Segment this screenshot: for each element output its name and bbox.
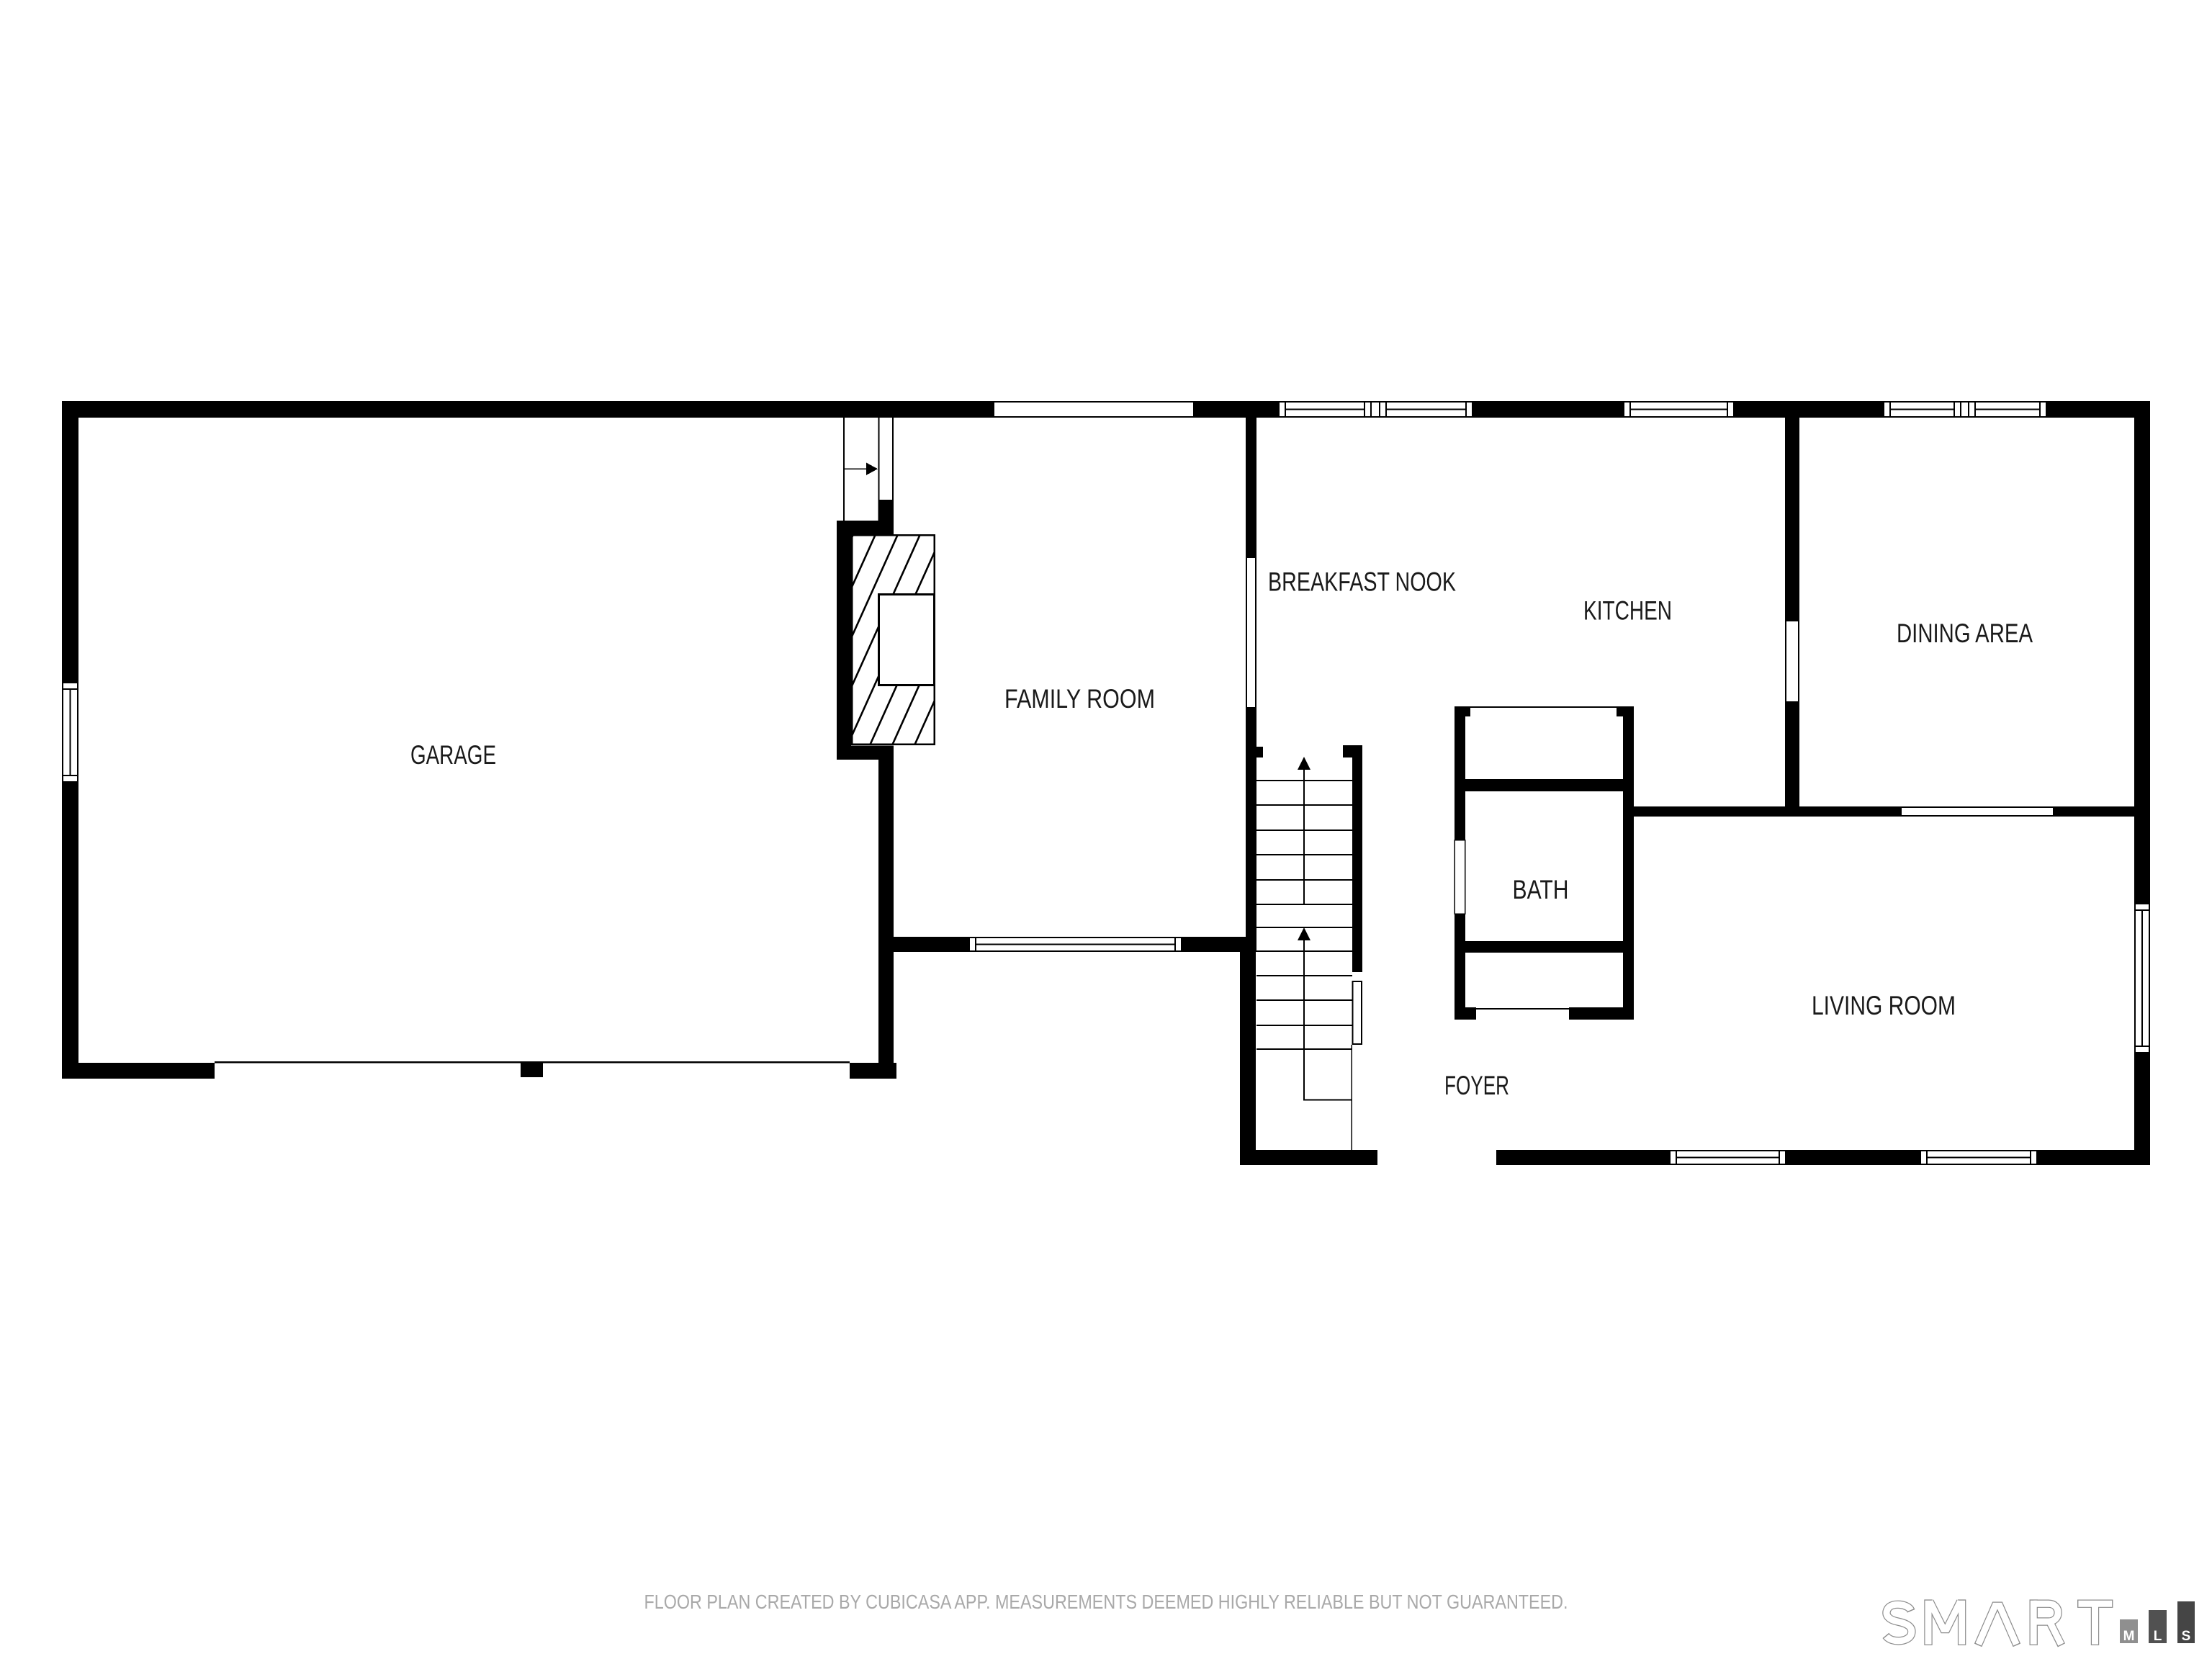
svg-text:BREAKFAST NOOK: BREAKFAST NOOK bbox=[1268, 567, 1456, 597]
svg-text:FOYER: FOYER bbox=[1444, 1071, 1509, 1100]
svg-text:BATH: BATH bbox=[1513, 875, 1569, 904]
svg-text:GARAGE: GARAGE bbox=[410, 740, 496, 770]
svg-text:LIVING ROOM: LIVING ROOM bbox=[1812, 991, 1956, 1020]
svg-text:L: L bbox=[2154, 1629, 2162, 1644]
svg-text:KITCHEN: KITCHEN bbox=[1583, 596, 1672, 626]
svg-text:M: M bbox=[2123, 1629, 2135, 1644]
svg-text:DINING AREA: DINING AREA bbox=[1897, 619, 2033, 648]
svg-text:S: S bbox=[2182, 1629, 2191, 1644]
svg-text:FAMILY ROOM: FAMILY ROOM bbox=[1004, 684, 1155, 714]
svg-text:FLOOR PLAN CREATED BY CUBICASA: FLOOR PLAN CREATED BY CUBICASA APP. MEAS… bbox=[644, 1590, 1568, 1613]
